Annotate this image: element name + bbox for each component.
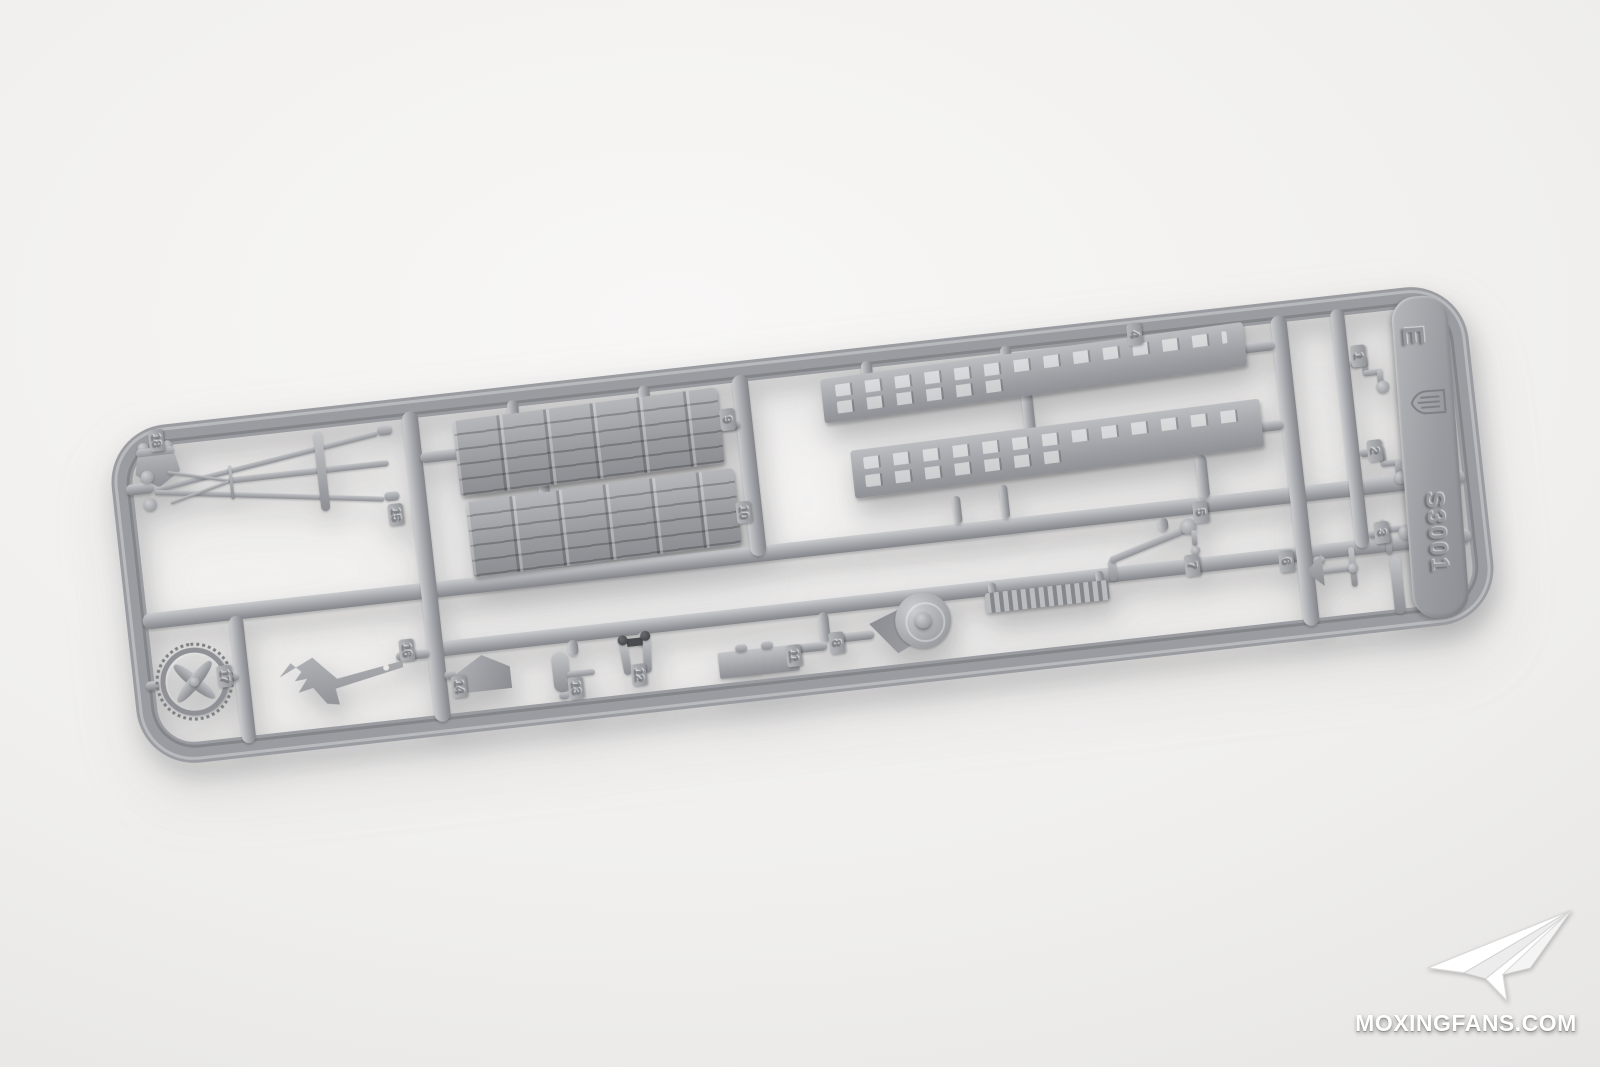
part-number-tag-15: 15 (387, 503, 404, 527)
sprue-letter: E (1394, 324, 1429, 347)
davit-drop (1191, 530, 1198, 546)
paper-plane-icon (1413, 901, 1578, 1006)
part-number-tag-1: 1 (1350, 344, 1367, 368)
part-number-tag-10: 10 (735, 501, 752, 525)
part-number-tag-2: 2 (1366, 439, 1383, 463)
sprue-code: S3001 (1419, 490, 1454, 574)
part-number-tag-11: 11 (785, 644, 802, 668)
mast-tip-fitting (377, 425, 393, 436)
part-number-tag-8: 8 (828, 631, 845, 655)
part-number-tag-17: 17 (216, 665, 233, 689)
brand-logo-icon (1405, 386, 1448, 419)
part-number-tag-7: 7 (1184, 554, 1201, 578)
sprue: 1 2 3 4 5 6 7 8 9 10 11 12 13 14 15 16 1… (105, 281, 1499, 769)
crank-knob (1376, 380, 1390, 394)
part-number-tag-9: 9 (719, 408, 736, 432)
mast-tip-fitting (384, 491, 400, 502)
mast-foot (140, 470, 154, 484)
part-number-tag-3: 3 (1373, 521, 1390, 545)
watermark-text: MOXINGFANS.COM (1346, 1010, 1586, 1037)
part-number-tag-12: 12 (630, 663, 647, 687)
part-number-tag-13: 13 (567, 676, 584, 700)
part-number-tag-4: 4 (1126, 323, 1143, 347)
anchor-fluke (1304, 554, 1324, 588)
mast-foot (143, 498, 157, 512)
part-number-tag-16: 16 (398, 638, 415, 662)
davit-arm (1108, 526, 1188, 564)
part-capstan (866, 586, 964, 660)
watermark: MOXINGFANS.COM (1346, 901, 1586, 1037)
anchor-ring (1348, 562, 1359, 573)
cylinder-part (1389, 556, 1406, 615)
part-number-tag-5: 5 (1192, 500, 1209, 524)
part-number-tag-6: 6 (1278, 549, 1295, 573)
part-number-tag-14: 14 (451, 675, 468, 699)
part-anchor (1303, 540, 1367, 600)
photo-background: 1 2 3 4 5 6 7 8 9 10 11 12 13 14 15 16 1… (0, 0, 1600, 1067)
part-number-tag-18: 18 (148, 429, 165, 453)
